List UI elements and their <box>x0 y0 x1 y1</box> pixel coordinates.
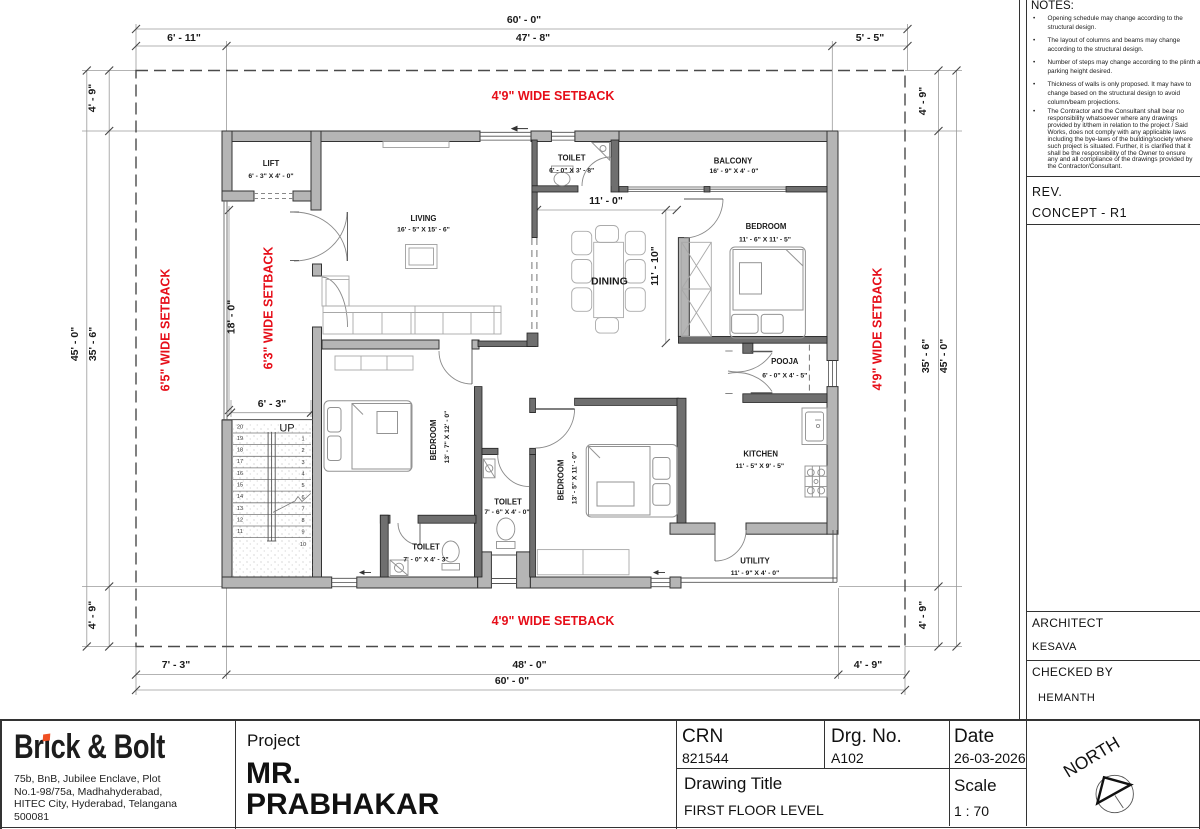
svg-text:BALCONY: BALCONY <box>714 157 753 166</box>
svg-text:13: 13 <box>237 506 243 512</box>
svg-text:LIVING: LIVING <box>411 214 437 223</box>
svg-text:11' - 0": 11' - 0" <box>589 195 623 207</box>
svg-text:10: 10 <box>300 542 306 548</box>
svg-text:6' - 11": 6' - 11" <box>167 32 201 44</box>
svg-text:9: 9 <box>301 530 304 536</box>
svg-text:4' - 9": 4' - 9" <box>87 601 99 630</box>
svg-text:11' - 5" X 9' - 5": 11' - 5" X 9' - 5" <box>736 463 785 470</box>
svg-text:UTILITY: UTILITY <box>740 557 770 566</box>
svg-text:13' - 5" X 11' - 0": 13' - 5" X 11' - 0" <box>572 452 579 504</box>
svg-text:LIFT: LIFT <box>263 159 280 168</box>
svg-text:5' - 5": 5' - 5" <box>856 32 885 44</box>
svg-text:POOJA: POOJA <box>771 357 799 366</box>
svg-text:60' - 0": 60' - 0" <box>495 675 529 687</box>
svg-text:13' - 7" X 12' - 0": 13' - 7" X 12' - 0" <box>444 411 451 464</box>
svg-text:6: 6 <box>301 495 304 501</box>
svg-text:4' - 9": 4' - 9" <box>917 601 929 630</box>
svg-text:8: 8 <box>301 518 304 524</box>
svg-text:16' - 9" X 4' - 0": 16' - 9" X 4' - 0" <box>710 168 759 175</box>
svg-text:45' - 0": 45' - 0" <box>938 339 950 373</box>
svg-text:19: 19 <box>237 436 243 442</box>
svg-text:2: 2 <box>301 448 304 454</box>
svg-text:47' - 8": 47' - 8" <box>516 32 550 44</box>
svg-text:5: 5 <box>301 483 304 489</box>
svg-text:BEDROOM: BEDROOM <box>429 420 438 461</box>
svg-text:11' - 6" X 11' - 5": 11' - 6" X 11' - 5" <box>739 237 791 244</box>
svg-text:35' - 6": 35' - 6" <box>87 327 99 361</box>
svg-text:NORTH: NORTH <box>1060 732 1123 781</box>
svg-text:DINING: DINING <box>591 276 628 288</box>
svg-text:11' - 10": 11' - 10" <box>649 246 661 286</box>
svg-text:BEDROOM: BEDROOM <box>557 460 566 501</box>
svg-text:4' - 9": 4' - 9" <box>87 84 99 113</box>
svg-text:16' - 5" X 15' - 6": 16' - 5" X 15' - 6" <box>397 227 450 234</box>
svg-text:6'3" WIDE SETBACK: 6'3" WIDE SETBACK <box>262 247 276 370</box>
svg-text:7' - 6" X 4' - 0": 7' - 6" X 4' - 0" <box>484 509 529 516</box>
svg-text:17: 17 <box>237 459 243 465</box>
svg-text:12: 12 <box>237 518 243 524</box>
svg-text:TOILET: TOILET <box>558 154 586 163</box>
svg-text:6'5" WIDE SETBACK: 6'5" WIDE SETBACK <box>159 269 173 392</box>
svg-text:6' - 3": 6' - 3" <box>258 398 287 410</box>
svg-text:TOILET: TOILET <box>494 498 522 507</box>
svg-text:18: 18 <box>237 448 243 454</box>
svg-text:11' - 9" X 4' - 0": 11' - 9" X 4' - 0" <box>731 570 780 577</box>
svg-text:20: 20 <box>237 425 243 431</box>
svg-text:4' - 9": 4' - 9" <box>917 87 929 116</box>
svg-text:45' - 0": 45' - 0" <box>69 327 81 361</box>
svg-text:7' - 3": 7' - 3" <box>162 659 191 671</box>
svg-text:UP: UP <box>279 423 294 435</box>
svg-text:14: 14 <box>237 494 243 500</box>
svg-text:3: 3 <box>301 460 304 466</box>
svg-text:15: 15 <box>237 483 243 489</box>
svg-text:7: 7 <box>301 507 304 513</box>
svg-text:4'9" WIDE SETBACK: 4'9" WIDE SETBACK <box>871 268 885 391</box>
svg-text:TOILET: TOILET <box>412 543 440 552</box>
svg-text:48' - 0": 48' - 0" <box>512 659 546 671</box>
svg-text:6' - 0" X 3' - 8": 6' - 0" X 3' - 8" <box>549 168 594 175</box>
svg-text:60' - 0": 60' - 0" <box>507 14 541 26</box>
svg-text:BEDROOM: BEDROOM <box>746 222 787 231</box>
svg-text:1: 1 <box>301 437 304 443</box>
svg-text:4' - 9": 4' - 9" <box>854 659 883 671</box>
svg-text:16: 16 <box>237 471 243 477</box>
svg-text:6' - 3" X 4' - 0": 6' - 3" X 4' - 0" <box>248 173 293 180</box>
svg-text:11: 11 <box>237 529 243 535</box>
svg-text:35' - 6": 35' - 6" <box>920 339 932 373</box>
svg-text:4'9" WIDE SETBACK: 4'9" WIDE SETBACK <box>492 89 615 103</box>
svg-text:4'9" WIDE SETBACK: 4'9" WIDE SETBACK <box>492 614 615 628</box>
svg-text:7' - 0" X 4' - 3": 7' - 0" X 4' - 3" <box>403 557 448 564</box>
svg-text:KITCHEN: KITCHEN <box>743 450 778 459</box>
svg-text:6' - 0" X 4' - 5": 6' - 0" X 4' - 5" <box>762 373 807 380</box>
svg-text:4: 4 <box>301 472 304 478</box>
